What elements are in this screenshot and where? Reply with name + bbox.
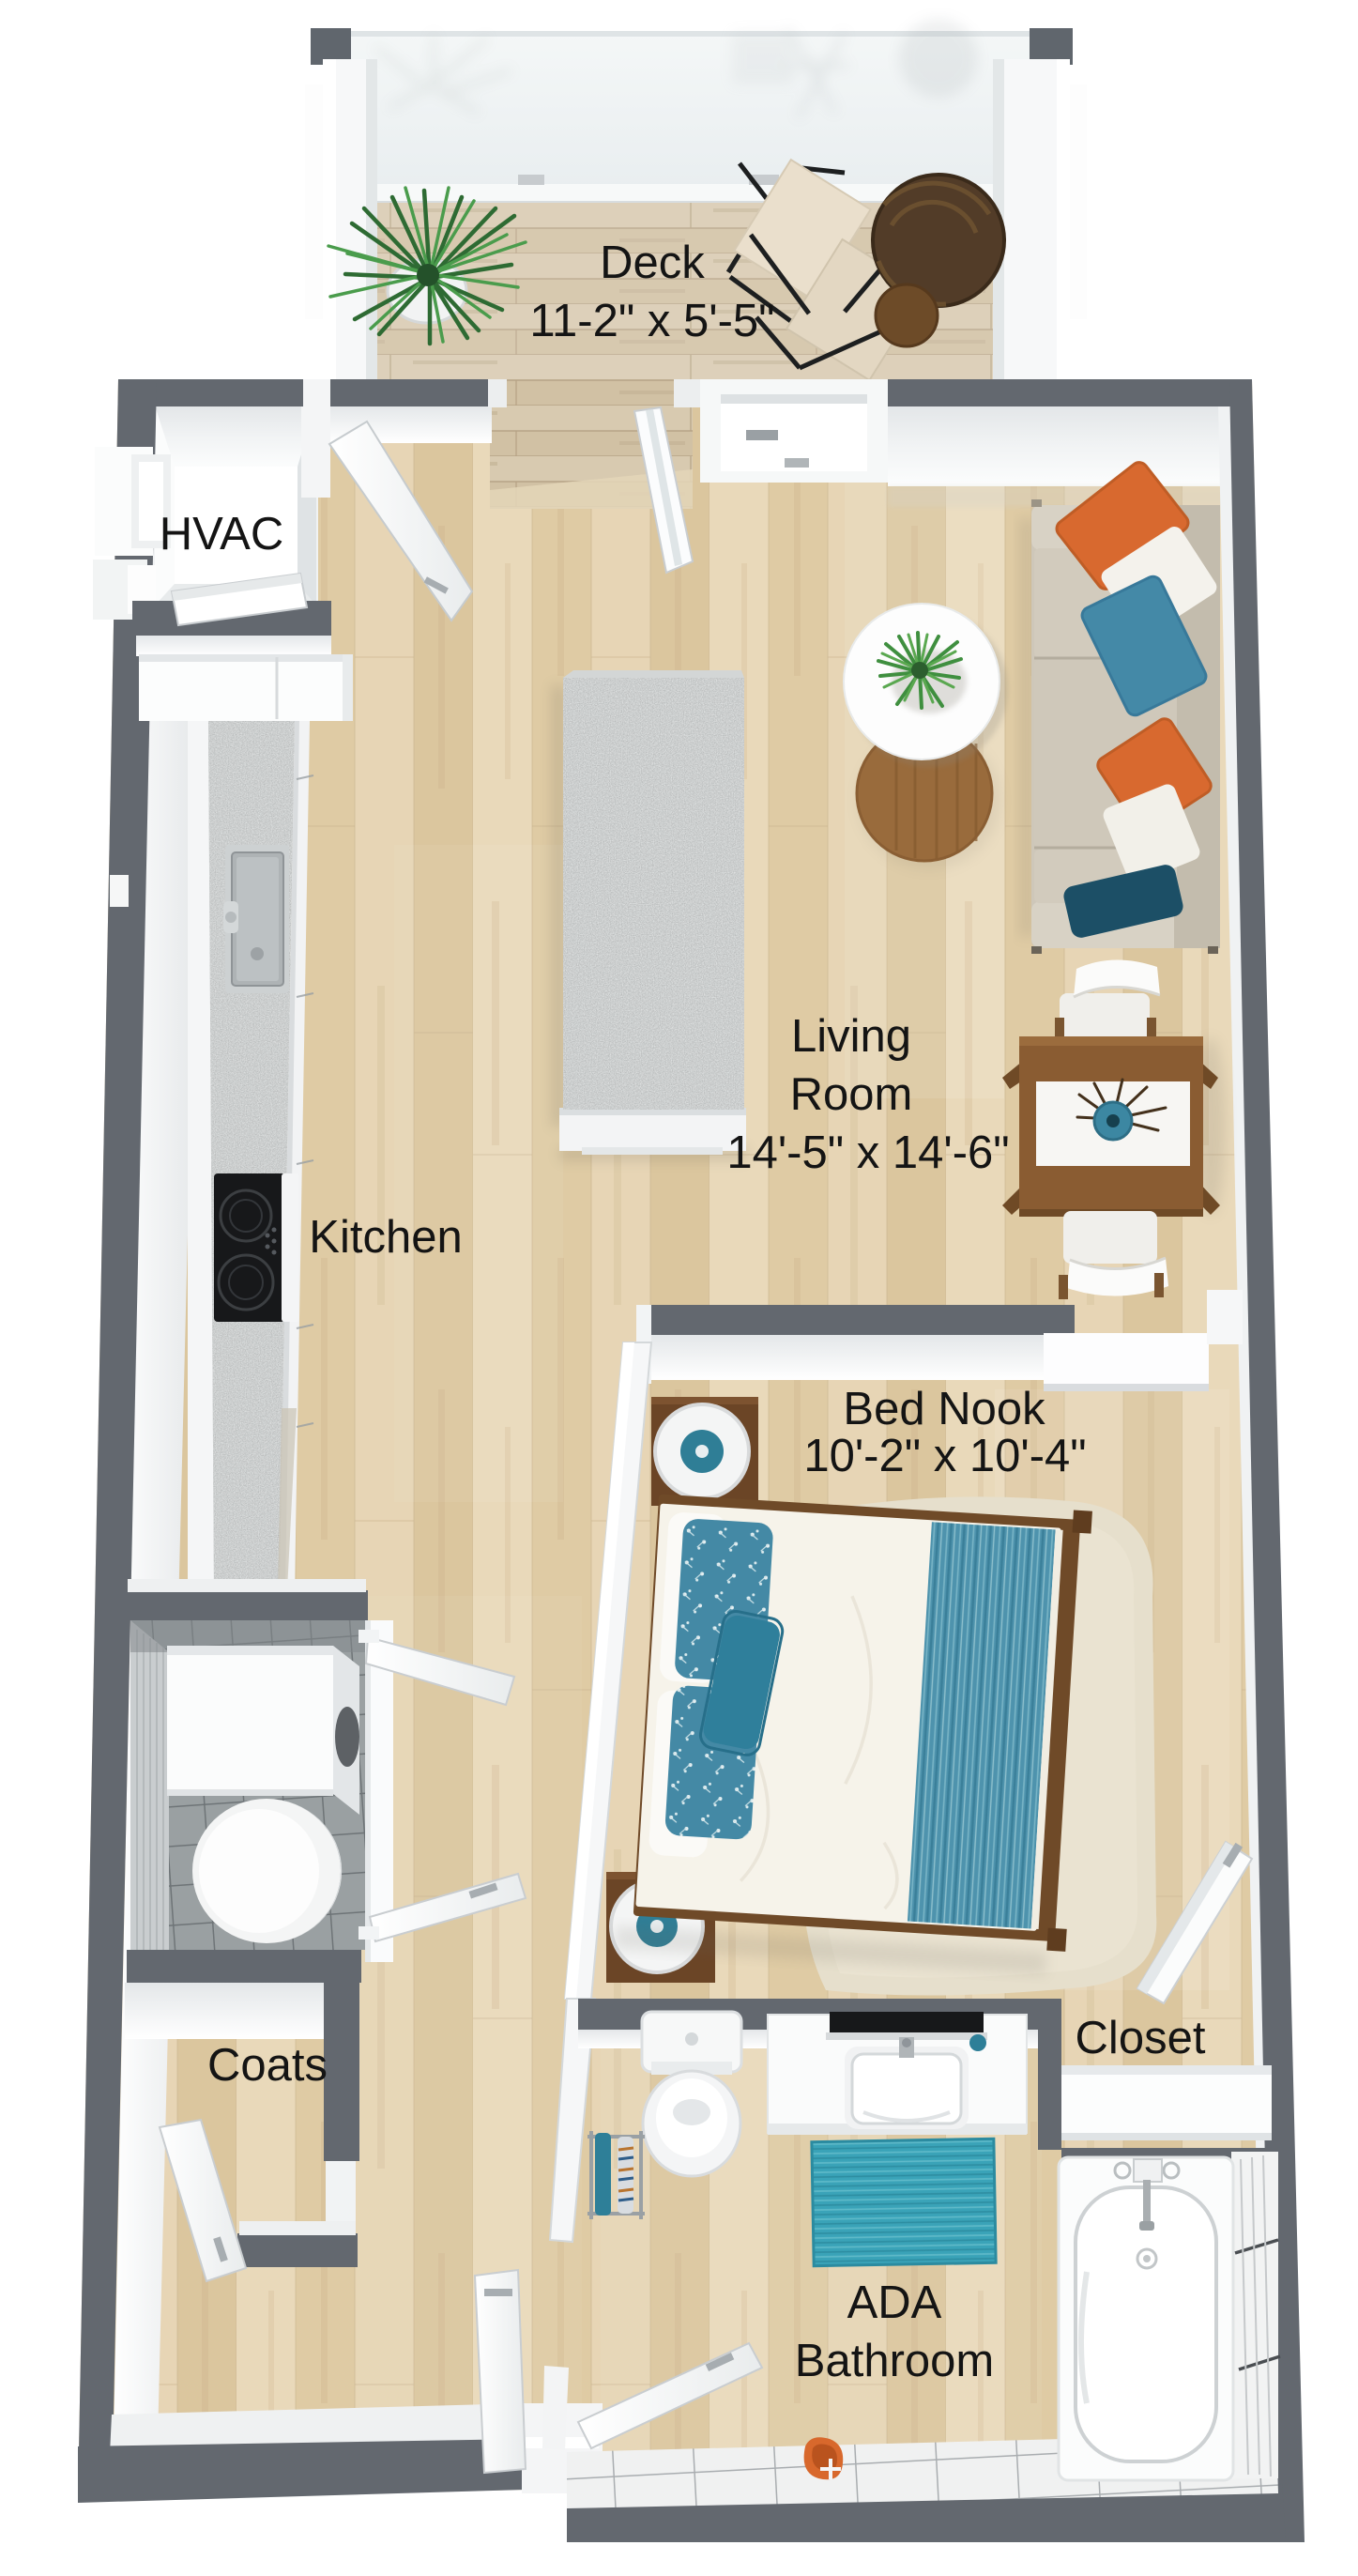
svg-text:14'-5" x 14'-6": 14'-5" x 14'-6" [726,1127,1009,1178]
svg-text:Coats: Coats [207,2040,328,2091]
svg-text:Deck: Deck [600,238,705,288]
svg-text:ADA: ADA [847,2277,942,2328]
svg-text:Room: Room [790,1069,913,1120]
svg-text:Bed Nook: Bed Nook [843,1384,1045,1434]
svg-text:Closet: Closet [1076,2013,1206,2063]
svg-text:Living: Living [791,1011,911,1062]
svg-text:Bathroom: Bathroom [795,2336,994,2386]
svg-text:HVAC: HVAC [160,509,284,560]
svg-text:11-2" x 5'-5": 11-2" x 5'-5" [529,296,774,346]
svg-text:10'-2" x 10'-4": 10'-2" x 10'-4" [803,1431,1086,1481]
svg-text:Kitchen: Kitchen [309,1212,462,1263]
